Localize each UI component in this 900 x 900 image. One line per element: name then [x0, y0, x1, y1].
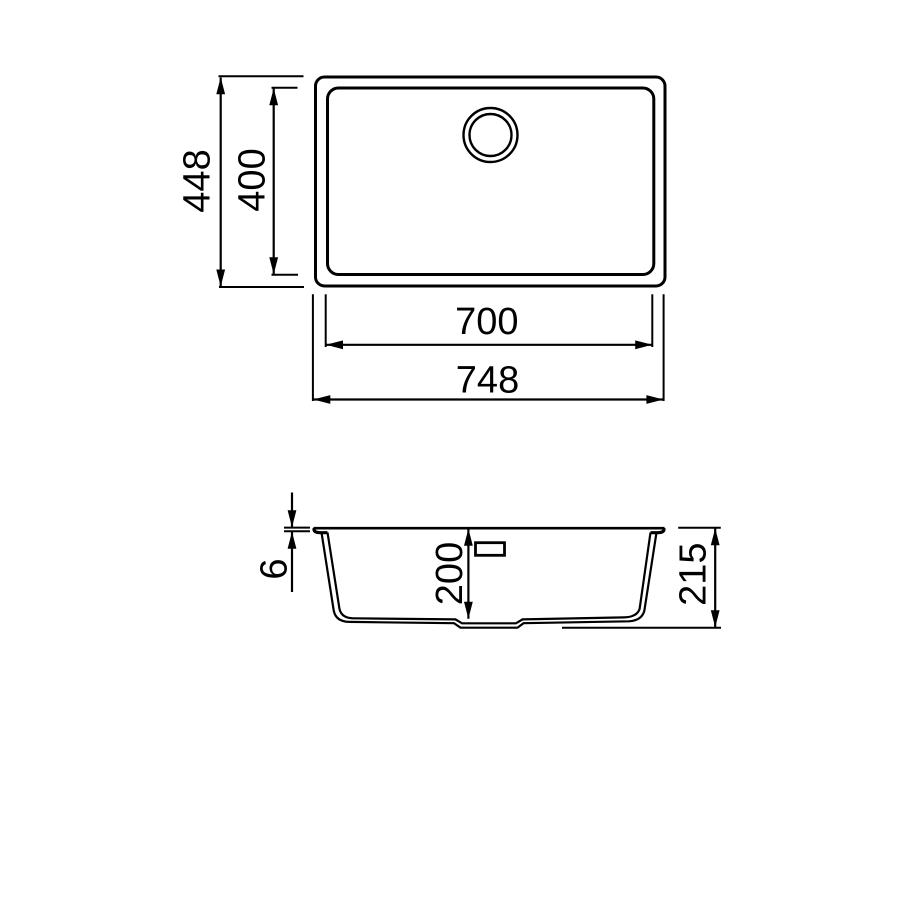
svg-text:448: 448 — [177, 149, 219, 212]
svg-text:700: 700 — [455, 301, 518, 343]
svg-text:748: 748 — [456, 360, 519, 402]
svg-text:200: 200 — [429, 542, 471, 605]
svg-text:215: 215 — [673, 542, 715, 605]
svg-text:6: 6 — [253, 558, 295, 579]
svg-text:400: 400 — [232, 148, 274, 211]
